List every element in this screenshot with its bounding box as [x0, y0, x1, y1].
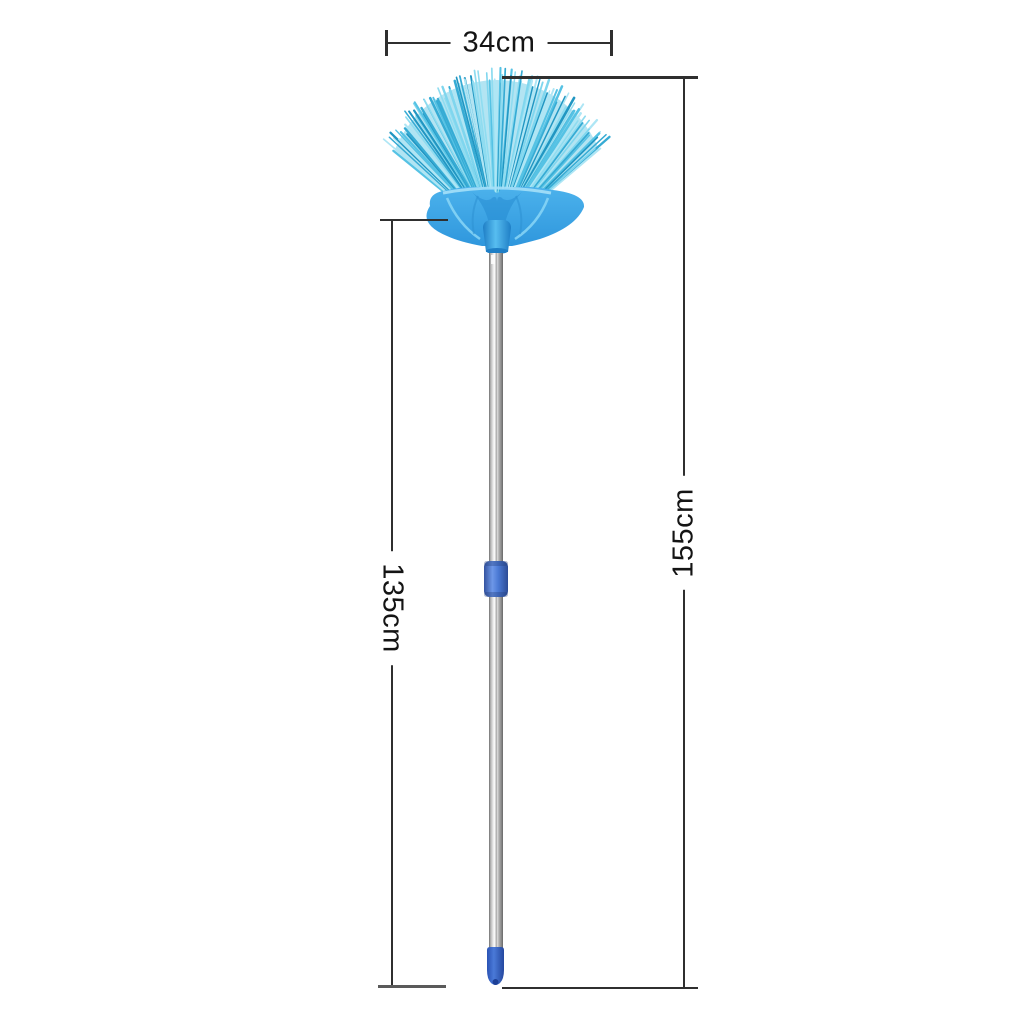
total-length-top-leader — [502, 76, 698, 79]
total-length-dim-label: 155cm — [670, 476, 699, 590]
broom-pole — [484, 253, 508, 985]
total-length-bottom-leader — [502, 987, 698, 989]
product-dimension-figure: 34cm 155cm 135cm — [0, 0, 1024, 1024]
broom-head-plastic — [426, 187, 584, 254]
handle-length-bottom-tick — [378, 985, 446, 988]
pole-connector-sleeve — [484, 561, 508, 597]
broom-bristle-fan — [384, 68, 610, 213]
width-dim-label: 34cm — [451, 29, 548, 58]
handle-length-dim-label: 135cm — [378, 551, 407, 665]
broom-photo — [0, 0, 1024, 1024]
broom-neck-socket — [483, 220, 511, 252]
